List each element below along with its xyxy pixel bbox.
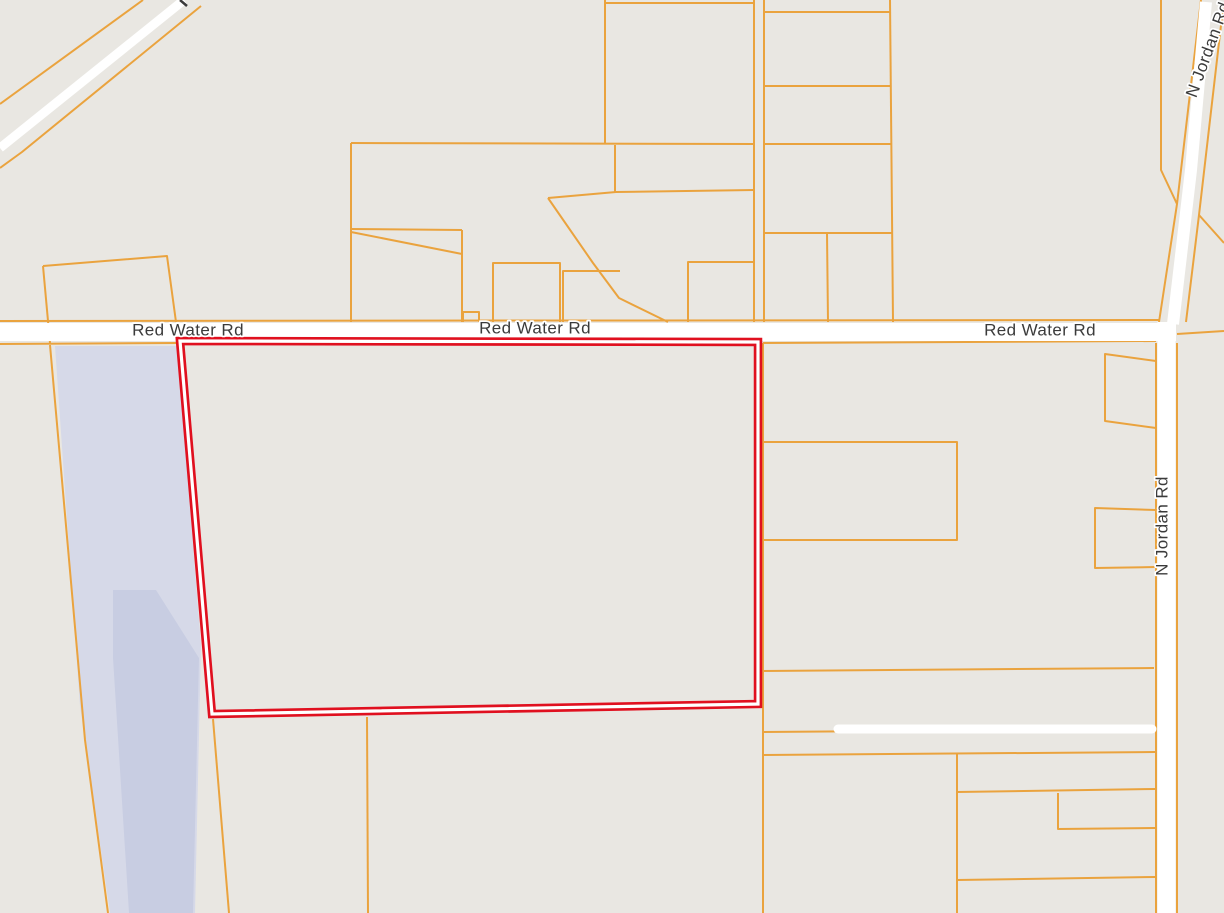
parcel-line (351, 229, 462, 230)
map-canvas[interactable]: Red Water Rd Red Water Rd Red Water Rd N… (0, 0, 1224, 913)
parcel-line (0, 343, 179, 344)
road-label-n-jordan-rd: N Jordan Rd (1152, 476, 1171, 576)
n-jordan-rd-surface (1158, 322, 1176, 913)
parcel-line (827, 233, 828, 322)
parcel-line (351, 143, 754, 144)
parcel-line (367, 717, 368, 913)
road-label-red-water-rd-east: Red Water Rd (984, 320, 1096, 339)
road-label-red-water-rd-west: Red Water Rd (132, 320, 244, 339)
map-viewport[interactable]: Red Water Rd Red Water Rd Red Water Rd N… (0, 0, 1224, 913)
road-label-red-water-rd-center: Red Water Rd (479, 318, 591, 337)
